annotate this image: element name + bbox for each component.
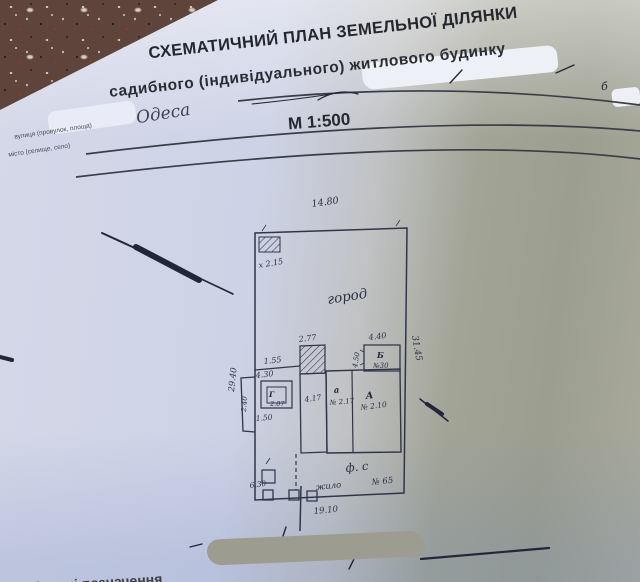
dim-bump: 2.40 (240, 395, 249, 413)
corner-mark-label: х 2.15 (258, 257, 284, 270)
dim-bottom: 19.10 (313, 504, 339, 517)
building-b-number-label: №30 (372, 362, 389, 370)
gate-note-left: 6.30 (249, 479, 267, 490)
diagonal-pen-mark-right (427, 404, 442, 414)
dim-house-top: 2.77 (297, 333, 318, 344)
dim-building-b-top: 4.40 (367, 331, 387, 342)
annex-letter-label: а (333, 386, 339, 396)
diagonal-pen-mark-top-left (136, 247, 199, 280)
hatched-annex-top (300, 345, 325, 374)
photographed-document: СХЕМАТИЧНИЙ ПЛАН ЗЕМЕЛЬНОЇ ДІЛЯНКИ садиб… (0, 0, 640, 582)
corner-hatched-structure (259, 237, 280, 252)
dim-annex: 4.17 (303, 393, 322, 404)
dim-shed-bottom: 1.50 (255, 413, 273, 423)
gate-symbols (263, 490, 317, 501)
house-room-divider (352, 370, 353, 452)
dim-shelf: 1.55 (263, 355, 282, 366)
shed-number-label: 2.07 (269, 400, 285, 408)
dim-top: 14.80 (311, 195, 339, 210)
house-number-label: № 2.10 (359, 400, 387, 412)
dim-left: 29.40 (227, 366, 240, 393)
dim-building-b-side: 4.50 (351, 351, 362, 369)
building-b-letter-label: Б (376, 350, 384, 360)
street-axis-line (300, 486, 301, 531)
annex-outline (300, 373, 327, 453)
yard-label: ф. с (345, 459, 370, 475)
dim-right: 31.45 (409, 335, 423, 362)
left-edge-pen-dash (0, 357, 12, 360)
annex-number-label: № 2.17 (328, 397, 355, 407)
stray-handwritten-letter: б (600, 80, 608, 94)
house-letter-label: А (364, 390, 374, 402)
underline-after-gray-patch (421, 548, 549, 559)
gate-note-right: № 65 (370, 476, 393, 488)
gate-note-middle: жило (315, 480, 342, 493)
shed-letter-label: Г (268, 390, 275, 399)
garden-label: город (326, 286, 368, 308)
dim-shed: 4.30 (254, 369, 274, 380)
pen-strokes (0, 65, 574, 569)
